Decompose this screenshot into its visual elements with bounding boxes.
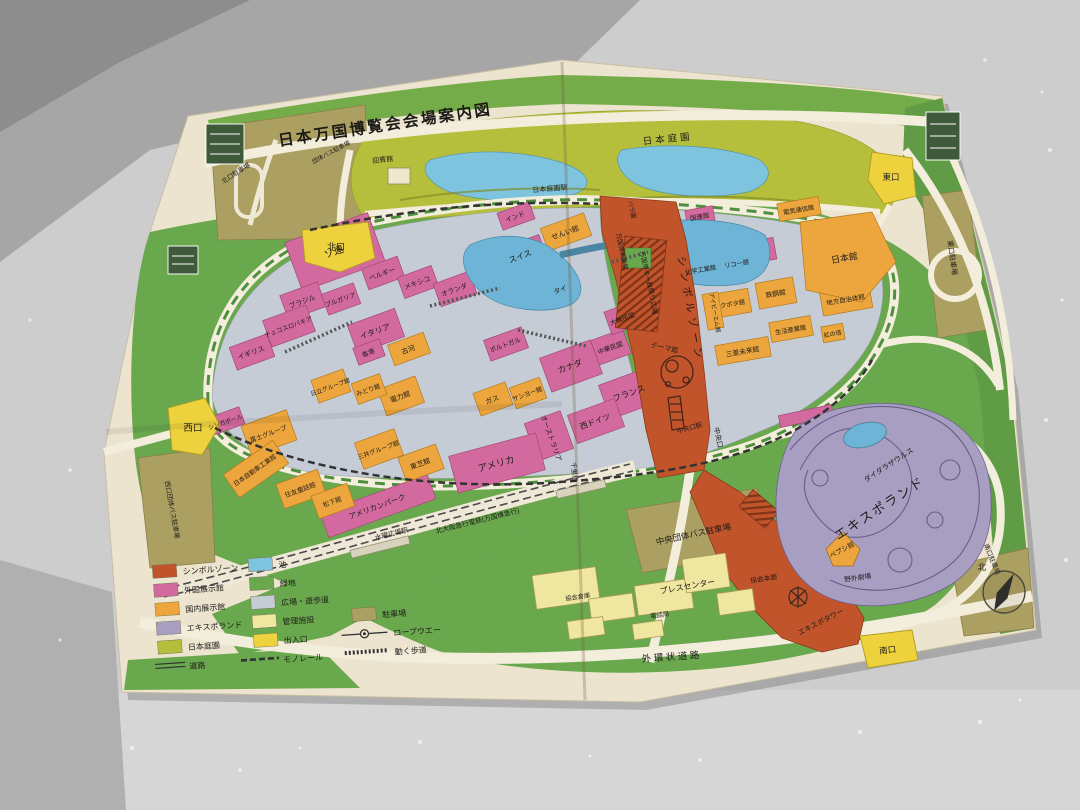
legend-label: 出入口 [283,634,308,646]
map-artwork [104,62,1034,700]
label-east-gate: 東口 [882,172,899,182]
label-south-gate: 南口 [879,644,897,656]
legend-swatch [153,583,178,598]
geihinkan-building [388,168,410,184]
legend-swatch [252,614,277,629]
photo-of-expo70-guide-map: 日本万国博覧会会場案内図 日本庭園 日本庭園駅 迎賓館 西口 北口 東口 南口 … [0,0,1080,810]
legend-swatch [251,595,276,610]
legend-label: 緑地 [279,577,296,588]
legend-swatch [352,607,377,622]
legend-swatch [249,576,274,591]
legend-swatch [155,602,180,617]
legend-swatch [156,621,181,636]
legend-label-road: 道路 [189,660,206,671]
legend-swatch [248,557,273,572]
legend-swatch [157,640,182,655]
legend-label: 池 [278,559,287,570]
legend-swatch [253,633,278,648]
legend-label: 駐車場 [382,608,407,620]
label-west-gate: 西口 [183,423,202,434]
compass-north-label: 北 [978,562,987,572]
legend-swatch [152,564,177,579]
